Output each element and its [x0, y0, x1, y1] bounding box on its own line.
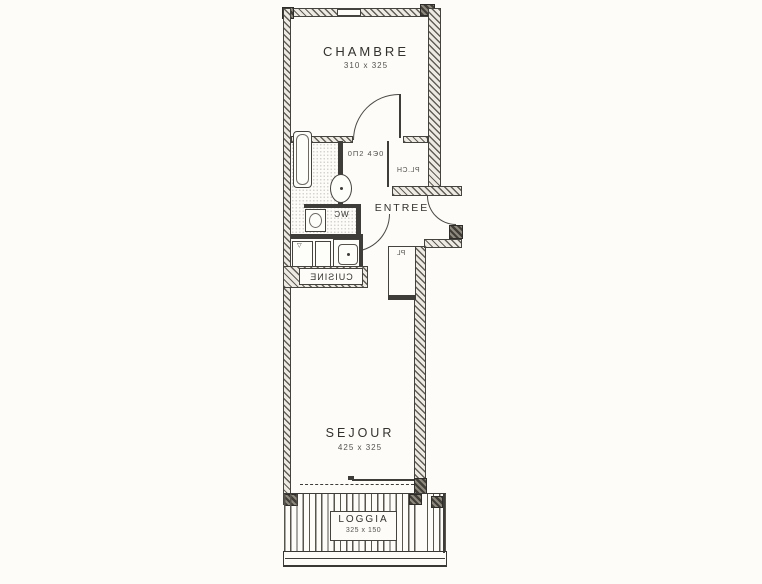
loggia-railing	[283, 551, 447, 567]
entry-door-post	[449, 225, 463, 239]
wc-wall-top	[304, 204, 360, 208]
washbasin-bowl	[309, 213, 322, 228]
entree-closet-label: PL	[391, 250, 411, 258]
hall-closet-label: PL.CH	[390, 167, 426, 175]
washbasin-icon	[305, 209, 326, 232]
loggia-edge-right	[443, 493, 445, 553]
hall-closet-wall	[387, 141, 389, 187]
bathtub-inner	[296, 134, 309, 185]
top-wall-window	[337, 9, 361, 16]
hall-dimensions: 0Π2 4Э0	[338, 150, 394, 159]
loggia-post-inner	[409, 494, 422, 505]
bathtub-icon	[293, 131, 312, 188]
kitchen-wall-right	[359, 236, 363, 268]
bay-window-slide-line	[352, 479, 416, 481]
kitchen-unit-icon: ▽	[292, 241, 313, 268]
chambre-label: CHAMBRE	[302, 45, 430, 60]
bay-window-dashed-line	[300, 484, 414, 486]
loggia-post-outer	[431, 496, 443, 508]
floor-plan: CHAMBRE 310 x 325 PL.CH 0Π2 4Э0 WC ENTRE…	[0, 0, 762, 584]
toilet-icon	[330, 174, 352, 203]
loggia-railing-midline	[285, 558, 445, 559]
loggia-dimensions: 325 x 150	[332, 527, 395, 535]
wc-label: WC	[329, 210, 353, 219]
sejour-dimensions: 425 x 325	[328, 443, 392, 452]
kitchen-counter-icon	[315, 241, 331, 268]
entry-wall-top	[392, 186, 462, 196]
bay-window-slide-handle	[348, 476, 354, 480]
loggia-label: LOGGIA	[332, 514, 395, 526]
cuisine-label: CUISINE	[301, 272, 361, 282]
entree-closet-wall-bottom	[388, 295, 416, 300]
chambre-door-arc	[353, 94, 399, 140]
chambre-wall-right-segment	[403, 136, 428, 143]
kitchen-sink-mark: ▽	[297, 243, 302, 250]
wall-top	[291, 8, 441, 17]
chambre-door-leaf	[399, 94, 401, 138]
toilet-dot	[340, 187, 343, 190]
chambre-dimensions: 310 x 325	[302, 61, 430, 70]
entree-label: ENTREE	[370, 202, 434, 214]
sejour-label: SEJOUR	[320, 426, 400, 440]
entry-wall-bottom	[424, 239, 462, 248]
wall-right-upper	[428, 8, 441, 190]
stove-dot	[347, 253, 350, 256]
kitchen-stove-icon	[333, 239, 361, 268]
wall-left	[283, 8, 291, 505]
